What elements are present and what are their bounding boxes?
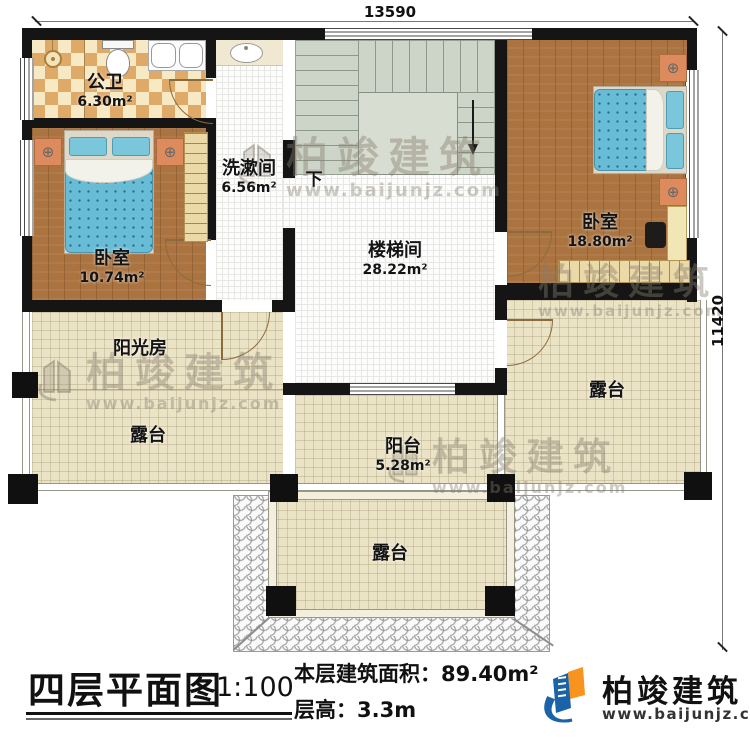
pillow [666, 91, 684, 129]
room-label-bedroom-right: 卧室 18.80m² [548, 212, 652, 250]
desk [667, 206, 687, 264]
room-label-balcony: 阳台 5.28m² [353, 436, 453, 474]
railing-right [700, 300, 707, 491]
wall-bathroom-washroom [206, 28, 216, 78]
mattress [594, 89, 648, 171]
plan-title: 四层平面图 [28, 660, 223, 714]
window-hall-bottom [350, 383, 455, 395]
column [266, 586, 296, 616]
column [485, 586, 515, 616]
stair-flight-right [458, 92, 495, 175]
room-label-terrace-bottom: 露台 [340, 543, 440, 565]
room-label-terrace-right: 露台 [557, 380, 657, 402]
closet-right [558, 260, 690, 283]
dimension-top-label: 13590 [330, 3, 450, 21]
window-bedroom-right [685, 70, 699, 238]
column [8, 474, 38, 504]
wall-hall-left-lower [283, 228, 295, 312]
room-label-sunroom: 阳光房 [90, 338, 190, 360]
bed-left [64, 130, 154, 254]
bedroom-right-door-leaf [507, 231, 552, 233]
pillow [112, 137, 150, 156]
column [12, 372, 38, 398]
sunroom-door-leaf [221, 312, 223, 360]
room-label-stair-hall: 楼梯间 28.22m² [340, 240, 450, 278]
sink-basin [151, 43, 176, 68]
railing-terrace-left-bottom [22, 483, 283, 491]
nightstand: ⊕ [156, 138, 184, 166]
room-label-bedroom-left: 卧室 10.74m² [72, 248, 152, 286]
railing-left [22, 312, 30, 491]
pillow [69, 137, 107, 156]
nightstand: ⊕ [659, 178, 687, 206]
terrace-door-leaf [507, 319, 553, 321]
column [487, 474, 515, 502]
column [684, 472, 712, 500]
window-top [325, 28, 532, 40]
window-bathroom-left [20, 58, 34, 120]
nightstand: ⊕ [659, 54, 687, 82]
bed-right [593, 86, 687, 174]
title-underline-thick [26, 712, 292, 715]
terrace-door-gap [495, 320, 507, 368]
toilet-tank [102, 40, 134, 49]
title-underline-thin [26, 718, 292, 720]
bed-sheet-fold [646, 89, 664, 171]
room-label-washroom: 洗漱间 6.56m² [204, 158, 294, 196]
stair-flight-left [295, 40, 358, 175]
wall-bedroom-left-bottom [22, 300, 222, 312]
floor-height-text: 层高：3.3m [294, 694, 416, 724]
bathroom-door-leaf [169, 79, 213, 81]
dimension-line-top [35, 21, 695, 22]
stair-direction-line [472, 100, 474, 146]
wall-hall-bottom-right [455, 383, 507, 395]
sink-basin [179, 43, 203, 68]
bedroom-right-door-gap [495, 232, 507, 285]
stair-direction-arrow [468, 144, 478, 155]
room-label-bathroom: 公卫 6.30m² [65, 72, 145, 110]
sunroom-door-gap [222, 300, 272, 312]
wall-bedroom-right-bottom [495, 283, 697, 300]
wall-hall-bottom-left [283, 383, 350, 395]
wall-hall-right-upper [495, 28, 507, 232]
plan-scale: 1:100 [216, 672, 294, 703]
nightstand: ⊕ [34, 138, 62, 166]
wall-bathroom-bottom [22, 118, 216, 128]
washroom-faucet-dot [244, 46, 248, 50]
column [270, 474, 298, 502]
brand-logo-icon [538, 664, 596, 726]
pillow [666, 133, 684, 169]
shower-cord [52, 40, 53, 51]
stairs-down-label: 下 [298, 170, 330, 190]
stair-landing [358, 92, 458, 175]
shower-head-dot [51, 57, 55, 61]
brand-url: www.baijunjz.com [602, 705, 750, 723]
dimension-right-label: 11420 [709, 291, 727, 351]
floor-plan-canvas: ⊕ ⊕ ⊕ ⊕ 柏竣建筑 www.baijunjz.com 柏竣建筑 www [0, 0, 750, 741]
stair-flight-top [358, 40, 495, 92]
window-bedroom-left [20, 140, 34, 236]
room-label-terrace-left: 露台 [98, 425, 198, 447]
railing-balcony-terrace-divider [497, 395, 505, 483]
floor-area-text: 本层建筑面积：89.40m² [294, 658, 539, 688]
